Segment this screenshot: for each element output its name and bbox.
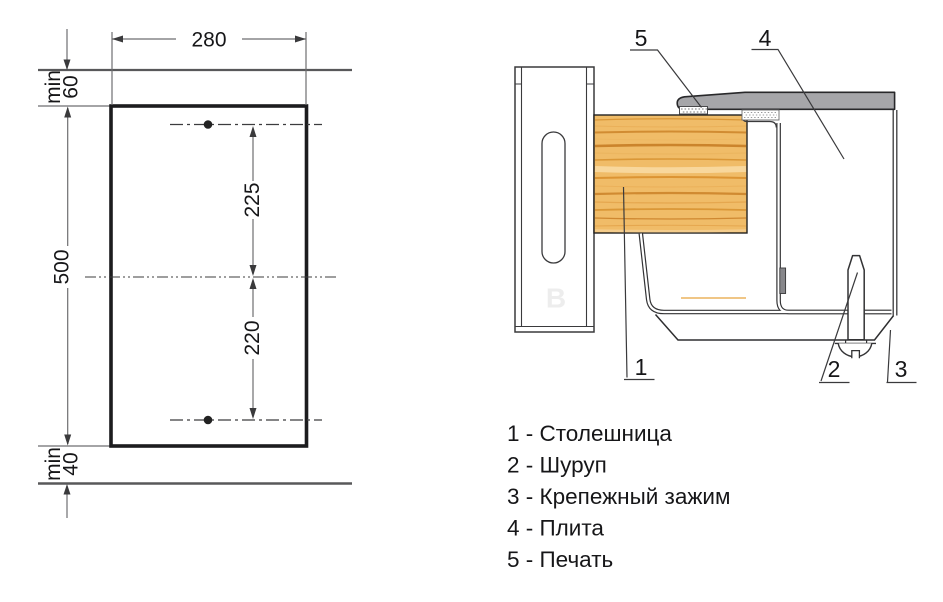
legend: 1 - Столешница 2 - Шуруп 3 - Крепежный з…: [507, 421, 730, 572]
bottom-margin-value: 40: [60, 452, 83, 475]
dimension-min60: [64, 29, 71, 70]
lower-hole-centerline: [170, 416, 322, 425]
seal-strip: [680, 107, 708, 115]
dimension-min40: [64, 484, 71, 518]
lower-hole-dot: [204, 416, 213, 425]
arrow-up: [250, 126, 257, 137]
bracket-watermark: B: [546, 283, 566, 314]
width-dim-label: 280: [191, 29, 226, 52]
countertop-wood: [594, 115, 747, 233]
legend-item-1: 1 - Столешница: [507, 421, 672, 446]
upper-hole-dim-label: 225: [241, 182, 264, 217]
screw-shaft: [848, 256, 864, 340]
callout-2-label: 2: [828, 356, 841, 382]
bracket-slot: [542, 132, 565, 263]
callout-1-label: 1: [635, 354, 648, 380]
arrow-down: [250, 265, 257, 276]
arrow-left: [112, 36, 123, 43]
cabinet-bracket: B: [515, 67, 594, 332]
arrow-down: [64, 435, 71, 446]
legend-item-3: 3 - Крепежный зажим: [507, 484, 730, 509]
upper-hole-centerline: [170, 120, 322, 129]
height-dim-label: 500: [51, 249, 74, 284]
cutout-rectangle: [111, 106, 307, 446]
arrow-down: [250, 408, 257, 419]
cutout-drawing: 280 min 60 500 225: [38, 29, 352, 519]
screw-slot: [852, 351, 860, 359]
callout-3-label: 3: [895, 356, 908, 382]
legend-item-2: 2 - Шуруп: [507, 453, 607, 478]
screw: [835, 256, 876, 359]
upper-hole-dot: [204, 120, 213, 129]
arrow-right: [295, 36, 306, 43]
hob-top-plate: [677, 92, 894, 109]
section-view: B: [515, 25, 917, 383]
gasket-stipple: [742, 110, 779, 120]
arrow-up: [250, 278, 257, 289]
arrow-up: [64, 107, 71, 118]
legend-item-4: 4 - Плита: [507, 516, 604, 541]
right-outer-wall: [893, 110, 897, 316]
diagram-canvas: 280 min 60 500 225: [0, 0, 943, 602]
callout-5-label: 5: [635, 25, 648, 51]
legend-item-5: 5 - Печать: [507, 547, 613, 572]
arrow-down: [64, 60, 71, 71]
lower-hole-dim-label: 220: [241, 320, 264, 355]
arrow-up: [64, 484, 71, 495]
callout-4-label: 4: [759, 25, 772, 51]
clamp-bar: [780, 268, 786, 294]
installation-diagram: 280 min 60 500 225: [0, 0, 943, 602]
top-margin-value: 60: [60, 75, 83, 98]
